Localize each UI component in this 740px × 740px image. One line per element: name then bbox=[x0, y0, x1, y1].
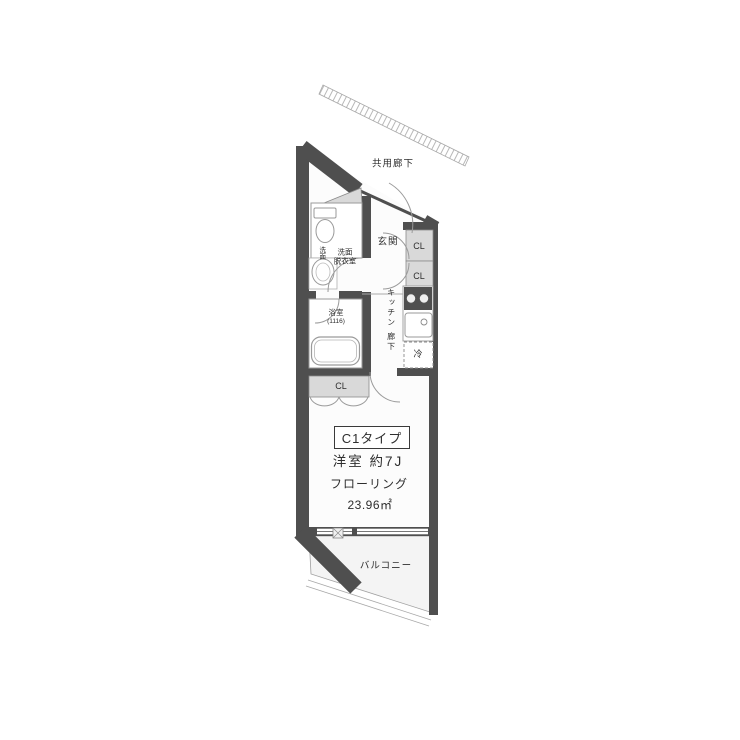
toilet-tank-icon bbox=[314, 208, 336, 218]
closet-upper-label: CL bbox=[413, 241, 425, 251]
wall-left bbox=[296, 146, 309, 535]
kitchen-label: キッチン bbox=[386, 288, 395, 328]
unit-type-label: C1タイプ bbox=[342, 428, 403, 447]
wall-closet-top bbox=[403, 222, 438, 230]
room-title-label: 洋室 約7J bbox=[333, 454, 404, 470]
stove-burner bbox=[406, 294, 415, 303]
wall-washroom-bath-left bbox=[309, 291, 316, 299]
wall-washroom-bath-right bbox=[339, 291, 362, 299]
wall-corridor-lower bbox=[362, 292, 371, 376]
common-corridor-hatch bbox=[319, 85, 469, 166]
wall-bath-closet bbox=[309, 368, 371, 376]
refrigerator-label: 冷 bbox=[413, 349, 422, 359]
balcony-label: バルコニー bbox=[360, 562, 412, 573]
stove-burner bbox=[419, 294, 428, 303]
washroom-label-line2: 脱衣室 bbox=[334, 257, 357, 266]
bath-label: 浴室 (1116) bbox=[327, 309, 345, 325]
area-label: 23.96㎡ bbox=[347, 499, 392, 513]
wall-corridor-upper bbox=[362, 196, 371, 258]
bath-label-name: 浴室 bbox=[327, 309, 345, 318]
closet-lower-label: CL bbox=[413, 271, 425, 281]
entrance-label: 玄関 bbox=[377, 238, 398, 249]
washroom-label: 洗面 脱衣室 bbox=[334, 248, 357, 265]
toilet-bowl-icon bbox=[316, 220, 334, 243]
unit-type-box: C1タイプ bbox=[334, 426, 410, 449]
bath-label-size: (1116) bbox=[327, 318, 345, 325]
sink-icon bbox=[405, 313, 432, 337]
floor-plan: 共用廊下 玄関 CL CL 洗面 脱衣室 洗面 浴室 (1116) キッチン 廊… bbox=[0, 0, 740, 740]
common-corridor-label: 共用廊下 bbox=[372, 160, 414, 171]
wall-kitchen-bottom bbox=[397, 368, 438, 376]
floor-plan-drawing bbox=[0, 0, 740, 740]
basin-label: 洗面 bbox=[317, 247, 324, 260]
closet-room-label: CL bbox=[335, 381, 347, 391]
hallway-label: 廊下 bbox=[386, 332, 395, 352]
flooring-label: フローリング bbox=[330, 478, 408, 492]
balcony-floor bbox=[309, 536, 433, 613]
bathtub-icon bbox=[312, 337, 360, 365]
